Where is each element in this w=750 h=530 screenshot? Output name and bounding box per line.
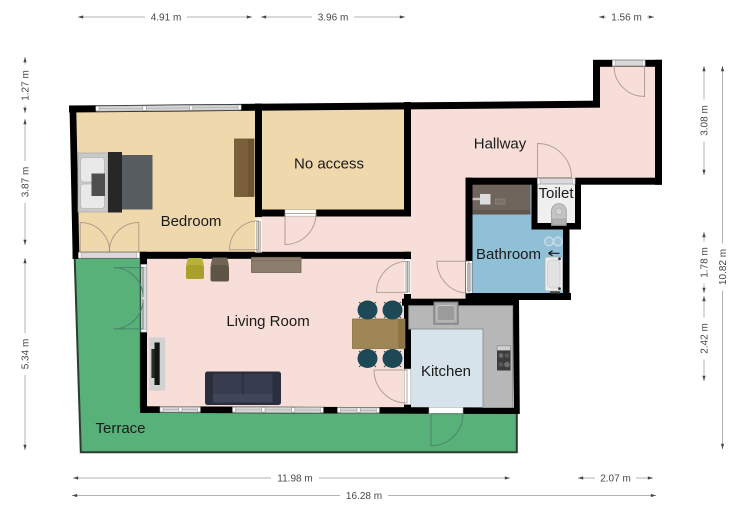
svg-text:2.07 m: 2.07 m [600, 474, 631, 485]
svg-text:10.82 m: 10.82 m [718, 249, 729, 285]
svg-text:Hallway: Hallway [474, 136, 527, 153]
svg-text:Bedroom: Bedroom [161, 213, 222, 230]
svg-text:16.28 m: 16.28 m [346, 491, 382, 502]
svg-text:Bathroom: Bathroom [476, 246, 541, 263]
svg-text:Toilet: Toilet [538, 185, 574, 202]
svg-text:1.56 m: 1.56 m [611, 13, 642, 24]
svg-text:4.91 m: 4.91 m [151, 13, 182, 24]
svg-text:3.87 m: 3.87 m [21, 167, 32, 198]
svg-text:No access: No access [294, 156, 364, 173]
svg-text:11.98 m: 11.98 m [277, 474, 312, 485]
svg-text:2.42 m: 2.42 m [700, 323, 711, 354]
svg-text:3.96 m: 3.96 m [318, 13, 349, 24]
svg-text:Terrace: Terrace [95, 420, 145, 437]
svg-text:Living Room: Living Room [226, 313, 309, 330]
svg-text:1.78 m: 1.78 m [700, 247, 711, 278]
svg-text:3.08 m: 3.08 m [700, 105, 711, 136]
svg-text:1.27 m: 1.27 m [21, 70, 32, 101]
svg-text:5.34 m: 5.34 m [21, 339, 32, 370]
svg-text:Kitchen: Kitchen [421, 363, 471, 380]
